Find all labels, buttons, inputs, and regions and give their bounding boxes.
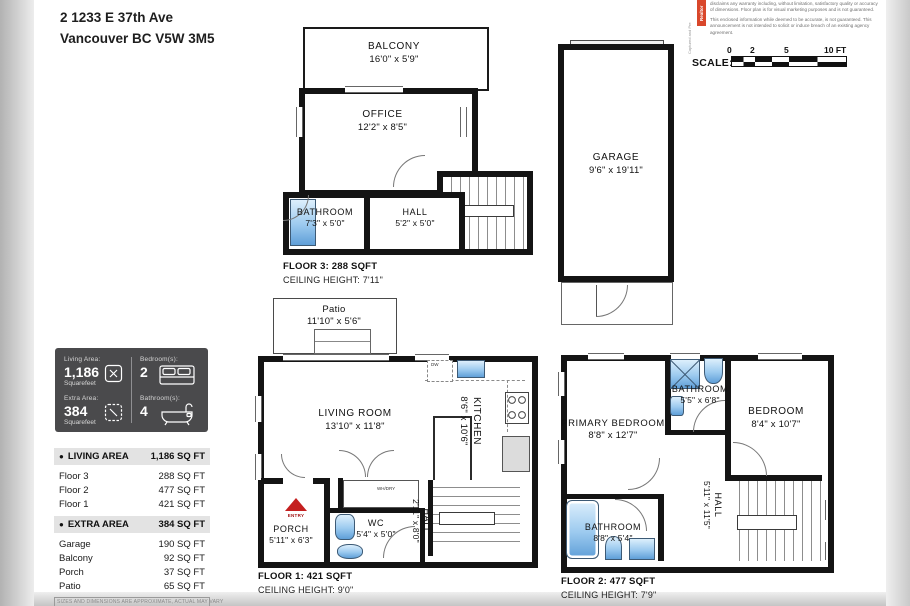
toilet-icon bbox=[704, 358, 723, 384]
row-value: 65 SQ FT bbox=[164, 581, 205, 592]
scale-label: SCALE: bbox=[692, 57, 733, 69]
row-label: Porch bbox=[59, 567, 84, 578]
room-label-office: OFFICE 12'2" x 8'5" bbox=[299, 109, 466, 133]
room-dims: 13'10" x 11'8" bbox=[285, 421, 425, 433]
table-row: Balcony92 SQ FT bbox=[54, 551, 210, 565]
room-dims: 8'8" x 12'7" bbox=[559, 430, 667, 442]
living-area-total: 1,186 SQ FT bbox=[151, 451, 205, 462]
scale-tick-0: 0 bbox=[727, 45, 732, 55]
row-label: Floor 1 bbox=[59, 499, 89, 510]
row-value: 190 SQ FT bbox=[159, 539, 205, 550]
table-row: Floor 3288 SQ FT bbox=[54, 469, 210, 483]
row-label: Floor 2 bbox=[59, 485, 89, 496]
scale-tick-5: 5 bbox=[784, 45, 789, 55]
room-name: GARAGE bbox=[558, 152, 674, 165]
scale-bar bbox=[731, 56, 847, 67]
primary-window-left-2 bbox=[558, 440, 565, 464]
stair-rail bbox=[737, 515, 797, 530]
bath2-top-wall bbox=[561, 494, 663, 499]
room-dims: 7'3" x 5'0" bbox=[285, 218, 365, 229]
room-label-balcony: BALCONY 16'0" x 5'9" bbox=[303, 41, 485, 65]
room-label-bathroom: BATHROOM 7'3" x 5'0" bbox=[285, 207, 365, 229]
floor2-ceiling-text: CEILING HEIGHT: 7'9" bbox=[561, 589, 656, 602]
room-name: Patio bbox=[273, 304, 395, 316]
row-value: 288 SQ FT bbox=[159, 471, 205, 482]
room-label-porch: PORCH 5'11" x 6'3" bbox=[259, 524, 323, 546]
primary-window-left-1 bbox=[558, 372, 565, 396]
summary-stats-box: Living Area: 1,186 Squarefeet Extra Area… bbox=[55, 348, 208, 432]
stats-divider bbox=[131, 357, 132, 423]
room-label-bathroom-bottom: BATHROOM 8'8" x 5'4" bbox=[570, 522, 656, 544]
scale-bar-row-bottom bbox=[732, 62, 846, 67]
room-label-garage: GARAGE 9'6" x 19'11" bbox=[558, 152, 674, 176]
room-label-bedroom: BEDROOM 8'4" x 10'7" bbox=[728, 406, 824, 430]
room-name: PRIMARY BEDROOM bbox=[559, 418, 667, 430]
extra-area-value: 384 bbox=[64, 403, 87, 419]
bedrooms-label: Bedroom(s): bbox=[140, 356, 178, 363]
header-title-text: LIVING AREA bbox=[68, 451, 129, 462]
patio-sliding-door bbox=[283, 354, 389, 361]
page-edge-left bbox=[0, 0, 34, 606]
bullet-icon: ● bbox=[59, 520, 64, 529]
room-label-living: LIVING ROOM 13'10" x 11'8" bbox=[285, 408, 425, 432]
address-line1: 2 1233 E 37th Ave bbox=[60, 8, 215, 29]
row-value: 477 SQ FT bbox=[159, 485, 205, 496]
room-name: LIVING ROOM bbox=[285, 408, 425, 421]
floorplan-sheet: 2 1233 E 37th Ave Vancouver BC V5W 3M5 C… bbox=[0, 0, 910, 606]
table-row: Floor 1421 SQ FT bbox=[54, 497, 210, 511]
living-area-header-title: ●LIVING AREA bbox=[59, 451, 129, 462]
table-row: Patio65 SQ FT bbox=[54, 579, 210, 593]
bullet-icon: ● bbox=[59, 452, 64, 461]
room-name: BATHROOM bbox=[662, 384, 738, 395]
living-window-left-1 bbox=[255, 396, 262, 422]
room-name: BEDROOM bbox=[728, 406, 824, 419]
whdry-label: WH/DRY bbox=[377, 486, 395, 491]
fridge bbox=[502, 436, 530, 472]
bath2-right-wall bbox=[658, 494, 664, 561]
room-name: OFFICE bbox=[299, 109, 466, 122]
living-area-unit: Squarefeet bbox=[64, 380, 96, 387]
realtor-badge: Realtor bbox=[697, 0, 706, 26]
row-label: Garage bbox=[59, 539, 91, 550]
room-dims: 16'0" x 5'9" bbox=[303, 54, 485, 66]
room-name: PORCH bbox=[259, 524, 323, 535]
garage-plan: GARAGE 9'6" x 19'11" bbox=[558, 40, 693, 335]
table-row: Floor 2477 SQ FT bbox=[54, 483, 210, 497]
room-dims: 12'2" x 8'5" bbox=[299, 122, 466, 134]
bedrooms-value: 2 bbox=[140, 364, 148, 380]
disclaimer-paragraph-1: disclaims any warranty including, withou… bbox=[710, 1, 882, 14]
floor3-area-text: FLOOR 3: 288 SQFT bbox=[283, 260, 383, 274]
room-label-hall2: HALL 5'11" x 11'5" bbox=[701, 460, 723, 550]
room-dims: 2'11" x 8'0" bbox=[410, 477, 421, 565]
row-value: 421 SQ FT bbox=[159, 499, 205, 510]
room-label-hall: HALL 5'2" x 5'0" bbox=[371, 207, 459, 229]
room-dims: 8'6" x 10'6" bbox=[458, 376, 470, 466]
address-line2: Vancouver BC V5W 3M5 bbox=[60, 29, 215, 50]
extra-area-total: 384 SQ FT bbox=[159, 519, 205, 530]
extra-area-label: Extra Area: bbox=[64, 395, 98, 402]
floor1-caption: FLOOR 1: 421 SQFT CEILING HEIGHT: 9'0" bbox=[258, 570, 353, 597]
entry-arrow-icon bbox=[285, 498, 307, 511]
bathrooms-value: 4 bbox=[140, 403, 148, 419]
room-name: BALCONY bbox=[303, 41, 485, 54]
bathtub-icon bbox=[158, 401, 196, 432]
dishwasher-label: DW bbox=[431, 362, 439, 367]
floor1-ceiling-text: CEILING HEIGHT: 9'0" bbox=[258, 584, 353, 597]
porch-wall-left bbox=[261, 478, 283, 484]
bedroom-window-top bbox=[758, 353, 802, 360]
table-row: Garage190 SQ FT bbox=[54, 537, 210, 551]
extra-area-header-title: ●EXTRA AREA bbox=[59, 519, 129, 530]
room-name: KITCHEN bbox=[470, 376, 483, 466]
floor2-caption: FLOOR 2: 477 SQFT CEILING HEIGHT: 7'9" bbox=[561, 575, 656, 602]
living-area-header: ●LIVING AREA 1,186 SQ FT bbox=[54, 448, 210, 465]
floor1-area-text: FLOOR 1: 421 SQFT bbox=[258, 570, 353, 584]
whdry-closet bbox=[343, 480, 419, 508]
living-area-value: 1,186 bbox=[64, 364, 99, 380]
table-row: Porch37 SQ FT bbox=[54, 565, 210, 579]
room-dims: 11'10" x 5'6" bbox=[273, 316, 395, 328]
floor1-plan: Patio 11'10" x 5'6" ENTRY PORCH 5'11" x … bbox=[255, 296, 547, 606]
room-dims: 5'2" x 5'0" bbox=[371, 218, 459, 229]
porch-side-wall bbox=[324, 478, 330, 562]
property-address: 2 1233 E 37th Ave Vancouver BC V5W 3M5 bbox=[60, 8, 215, 50]
room-name: BATHROOM bbox=[285, 207, 365, 218]
room-name: HALL bbox=[371, 207, 459, 218]
room-dims: 5'11" x 6'3" bbox=[259, 535, 323, 546]
room-dims: 8'4" x 10'7" bbox=[728, 419, 824, 431]
floor3-caption: FLOOR 3: 288 SQFT CEILING HEIGHT: 7'11" bbox=[283, 260, 383, 287]
wc-toilet-icon bbox=[337, 544, 363, 559]
living-window-left-2 bbox=[255, 454, 262, 480]
floor2-plan: PRIMARY BEDROOM 8'8" x 12'7" BATHROOM 5'… bbox=[558, 350, 850, 606]
room-dims: 8'8" x 5'4" bbox=[570, 533, 656, 544]
stove-icon bbox=[505, 392, 529, 429]
shrink-icon bbox=[103, 402, 124, 428]
row-value: 92 SQ FT bbox=[164, 553, 205, 564]
room-label-patio: Patio 11'10" x 5'6" bbox=[273, 304, 395, 328]
disclaimer-paragraph-2: This enclosed information while deemed t… bbox=[710, 17, 882, 36]
row-label: Floor 3 bbox=[59, 471, 89, 482]
room-label-kitchen: KITCHEN 8'6" x 10'6" bbox=[458, 376, 482, 466]
room-name: HALL bbox=[712, 460, 723, 550]
room-dims: 5'11" x 11'5" bbox=[701, 460, 712, 550]
row-value: 37 SQ FT bbox=[164, 567, 205, 578]
floor2-area-text: FLOOR 2: 477 SQFT bbox=[561, 575, 656, 589]
header-title-text: EXTRA AREA bbox=[68, 519, 129, 530]
patio-step-line bbox=[315, 341, 370, 342]
disclaimer-text: disclaims any warranty including, withou… bbox=[710, 1, 882, 39]
extra-area-header: ●EXTRA AREA 384 SQ FT bbox=[54, 516, 210, 533]
scale-tick-10: 10 FT bbox=[824, 45, 846, 55]
room-dims: 5'5" x 6'8" bbox=[662, 395, 738, 406]
room-label-bathroom-top: BATHROOM 5'5" x 6'8" bbox=[662, 384, 738, 406]
table-footnote: SIZES AND DIMENSIONS ARE APPROXIMATE, AC… bbox=[54, 597, 210, 606]
room-dims: 9'6" x 19'11" bbox=[558, 165, 674, 177]
primary-window-top bbox=[588, 353, 624, 360]
entry-label: ENTRY bbox=[281, 513, 311, 518]
floor3-ceiling-text: CEILING HEIGHT: 7'11" bbox=[283, 274, 383, 287]
row-label: Patio bbox=[59, 581, 81, 592]
extra-area-unit: Squarefeet bbox=[64, 419, 96, 426]
row-label: Balcony bbox=[59, 553, 93, 564]
page-edge-right bbox=[886, 0, 910, 606]
floor3-plan: BALCONY 16'0" x 5'9" OFFICE 12'2" x 8'5"… bbox=[283, 27, 533, 302]
area-table: ●LIVING AREA 1,186 SQ FT Floor 3288 SQ F… bbox=[54, 448, 210, 606]
expand-icon bbox=[103, 363, 124, 389]
living-area-label: Living Area: bbox=[64, 356, 100, 363]
scale-tick-2: 2 bbox=[750, 45, 755, 55]
room-label-primary-bedroom: PRIMARY BEDROOM 8'8" x 12'7" bbox=[559, 418, 667, 442]
room-name: BATHROOM bbox=[570, 522, 656, 533]
bed-icon bbox=[158, 364, 196, 391]
balcony-door bbox=[345, 86, 403, 93]
stair-rail bbox=[439, 512, 495, 525]
